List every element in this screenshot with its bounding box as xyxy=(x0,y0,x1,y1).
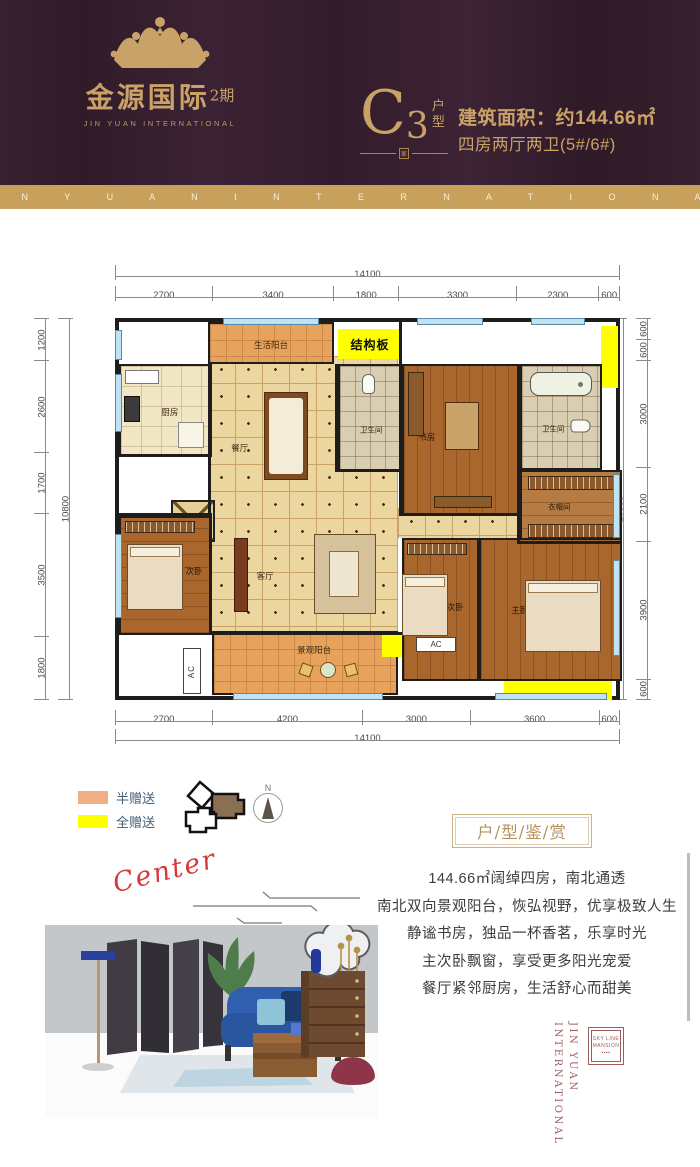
room-cloakroom: 衣帽间 xyxy=(520,470,622,544)
floor-plan: 生活阳台 景观阳台 结构板 厨房 餐厅 卫生间 xyxy=(115,318,620,700)
wall xyxy=(208,364,211,516)
sofa-set-icon xyxy=(314,534,376,614)
window-study xyxy=(417,318,483,325)
unit-bracket-decoration: 家 xyxy=(360,148,448,159)
wall xyxy=(212,632,402,635)
structure-board-label: 结构板 xyxy=(338,329,402,359)
wall xyxy=(119,454,212,457)
unit-jia-char: 家 xyxy=(399,148,409,159)
gold-ribbon: J I N Y U A N I N T E R N A T I O N A L xyxy=(0,185,700,209)
wall xyxy=(209,516,212,635)
dim-bottom-segments: 2700 4200 3000 3600 600 xyxy=(115,710,620,725)
room-view-balcony: 景观阳台 xyxy=(212,631,398,695)
dining-table-icon xyxy=(264,392,308,480)
wall xyxy=(517,364,520,544)
dim-right-segments: 600 600 3000 2100 3900 600 xyxy=(636,318,651,700)
dim-top-total: 14100 xyxy=(115,265,620,280)
room-guest-bath: 卫生间 xyxy=(338,364,402,472)
interior-scene-image xyxy=(45,925,378,1117)
balcony-chair2-icon xyxy=(344,663,359,678)
header-banner: 金源国际2期 JIN YUAN INTERNATIONAL C 3 户 型 家 … xyxy=(0,0,700,185)
kitchen-counter-icon xyxy=(178,422,204,448)
folding-screen-icon xyxy=(107,939,223,1055)
master-bed-icon xyxy=(525,580,601,652)
guest-toilet-icon xyxy=(362,374,375,394)
ribbon-text: J I N Y U A N I N T E R N A T I O N A L xyxy=(0,192,700,202)
room-bedroom3: 次卧 xyxy=(402,538,479,681)
study-desk-icon xyxy=(445,402,479,450)
study-cabinet-icon xyxy=(434,496,492,508)
dim-top-segments: 2700 3400 1800 3300 2300 600 xyxy=(115,286,620,301)
gift-zone-top-right xyxy=(601,326,618,388)
wall xyxy=(338,469,402,472)
bedroom2-bed-icon xyxy=(127,544,183,610)
footer-brand-vertical: JIN YUAN INTERNATIONAL xyxy=(552,1022,578,1157)
appreciation-title: 户/型/鉴/赏 xyxy=(477,819,567,843)
bedroom2-wardrobe-icon xyxy=(125,521,195,533)
wall xyxy=(399,322,402,516)
wall xyxy=(402,513,522,516)
desc-line: 南北双向景观阳台，恢弘视野，优享极致人生 xyxy=(362,894,692,922)
site-location-map xyxy=(168,772,260,843)
footer-brand-line1: JIN YUAN xyxy=(567,1022,578,1157)
unit-type-chars: 户 型 xyxy=(432,98,445,130)
floorplan-flyer-page: 金源国际2期 JIN YUAN INTERNATIONAL C 3 户 型 家 … xyxy=(0,0,700,1167)
room-bedroom2: 次卧 xyxy=(119,516,212,635)
compass-icon: N xyxy=(248,783,288,831)
room-master-bath: 卫生间 xyxy=(520,364,602,470)
dim-bottom-total: 14100 xyxy=(115,729,620,744)
appreciation-title-box: 户/型/鉴/赏 xyxy=(452,814,592,848)
room-kitchen: 厨房 xyxy=(119,364,212,456)
wall xyxy=(119,513,212,516)
study-shelf-icon xyxy=(408,372,424,436)
brand-phase: 2期 xyxy=(210,87,235,105)
legend-full-gift: 全赠送 xyxy=(78,812,155,831)
wall xyxy=(520,541,622,544)
unit-number: 3 xyxy=(406,110,429,144)
bedroom3-bed-icon xyxy=(402,574,448,636)
half-gift-swatch xyxy=(78,791,108,804)
bathtub-icon xyxy=(530,372,592,396)
dim-left-total: 10800 xyxy=(58,318,73,700)
wall xyxy=(335,364,338,472)
unit-type-block: C 3 户 型 家 xyxy=(360,84,450,159)
desc-line: 144.66㎡阔绰四房，南北通透 xyxy=(362,866,692,894)
master-toilet-icon xyxy=(571,420,591,433)
legend-half-gift: 半赠送 xyxy=(78,788,155,807)
tv-cabinet-icon xyxy=(234,538,248,612)
crown-icon xyxy=(100,14,220,76)
room-layout-text: 四房两厅两卫(5#/6#) xyxy=(458,131,616,155)
window-balcony-bottom xyxy=(233,693,383,700)
kitchen-stove-icon xyxy=(124,396,140,422)
ac-platform-left: AC xyxy=(183,648,201,694)
desc-line: 主次卧飘窗，享受更多阳光宠爱 xyxy=(362,949,692,977)
window-master-bottom xyxy=(495,693,607,700)
ac-platform-right: AC xyxy=(416,637,456,652)
desc-line: 餐厅紧邻厨房，生活舒心而甜美 xyxy=(362,976,692,1004)
kitchen-sink-icon xyxy=(125,370,159,384)
bedroom3-wardrobe-icon xyxy=(407,543,467,555)
brand-stamp: SKY LINE MANSION ▪▪▪▪ xyxy=(588,1027,624,1065)
window-top-left xyxy=(115,330,122,360)
dim-left-segments: 1200 2600 1700 3500 1800 xyxy=(34,318,49,700)
window-bedroom2 xyxy=(115,534,122,618)
brand-logo: 金源国际2期 JIN YUAN INTERNATIONAL xyxy=(55,14,265,128)
window-cloakroom xyxy=(613,474,620,538)
room-life-balcony: 生活阳台 xyxy=(208,322,334,364)
room-dining: 餐厅 xyxy=(212,364,338,516)
balcony-chair-icon xyxy=(298,662,313,677)
room-living: 客厅 xyxy=(212,516,402,635)
brand-name-en: JIN YUAN INTERNATIONAL xyxy=(55,119,265,128)
balcony-table-icon xyxy=(320,662,336,678)
room-master: 主卧 xyxy=(479,538,622,681)
room-study: 书房 xyxy=(402,364,520,516)
blue-vase-icon xyxy=(311,949,321,973)
gift-legend: 半赠送 全赠送 xyxy=(78,788,155,836)
window-master-right xyxy=(613,560,620,656)
unit-letter: C xyxy=(360,84,406,142)
desc-line: 静谧书房，独品一杯香茗，乐享时光 xyxy=(362,921,692,949)
building-area-text: 建筑面积：约144.66㎡ xyxy=(458,103,656,130)
wardrobe-top-icon xyxy=(528,476,616,490)
full-gift-swatch xyxy=(78,815,108,828)
vertical-divider xyxy=(687,853,690,1021)
brand-name-cn: 金源国际 xyxy=(86,81,210,114)
dresser-icon xyxy=(301,971,365,1057)
window-balcony-top xyxy=(223,318,319,325)
description-block: 144.66㎡阔绰四房，南北通透 南北双向景观阳台，恢弘视野，优享极致人生 静谧… xyxy=(362,866,692,1004)
wardrobe-bottom-icon xyxy=(528,524,616,538)
footer-brand-line2: INTERNATIONAL xyxy=(552,1022,563,1157)
window-kitchen xyxy=(115,374,122,432)
window-bath xyxy=(531,318,585,325)
